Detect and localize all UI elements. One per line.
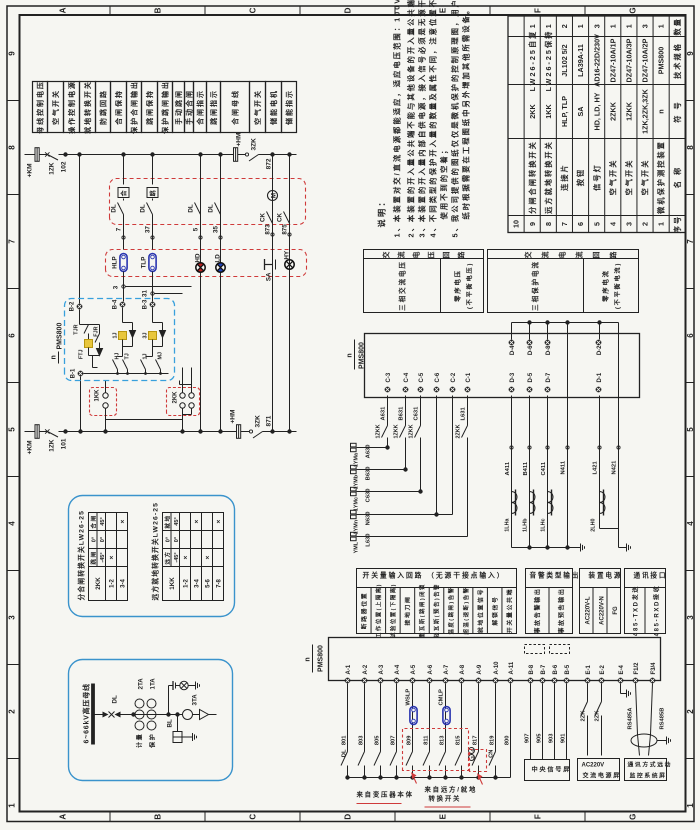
svg-text:TLP: TLP <box>141 257 148 269</box>
svg-text:FJR: FJR <box>94 326 100 336</box>
svg-text:PMS800: PMS800 <box>318 645 325 672</box>
svg-text:9: 9 <box>686 51 695 56</box>
svg-text:CMLP: CMLP <box>439 689 445 706</box>
svg-text:温度(跳闸)告警: 温度(跳闸)告警 <box>447 586 455 634</box>
svg-text:空气开关: 空气开关 <box>624 159 633 196</box>
svg-text:B631: B631 <box>399 406 405 421</box>
svg-text:符 号: 符 号 <box>673 100 682 122</box>
svg-text:F: F <box>534 814 543 819</box>
svg-text:35: 35 <box>213 226 220 233</box>
svg-text:A630: A630 <box>366 445 372 459</box>
svg-text:B: B <box>154 7 163 13</box>
svg-text:4、不同类型的保护开入量的数量及属性不同，注意位置不要接错，: 4、不同类型的保护开入量的数量及属性不同，注意位置不要接错， <box>429 0 438 238</box>
svg-text:0°: 0° <box>174 537 180 542</box>
svg-text:操作控制电源: 操作控制电源 <box>67 80 76 134</box>
svg-text:A-11: A-11 <box>509 661 515 674</box>
svg-text:远方: 远方 <box>164 550 172 564</box>
svg-text:序号: 序号 <box>673 215 682 233</box>
svg-text:1KK: 1KK <box>544 104 553 119</box>
svg-text:CK: CK <box>260 213 267 222</box>
svg-text:空气开关: 空气开关 <box>253 89 262 125</box>
svg-text:1ZK,2ZK,3ZK: 1ZK,2ZK,3ZK <box>641 88 650 134</box>
svg-text:合闸母线: 合闸母线 <box>231 89 240 126</box>
svg-text:3: 3 <box>8 615 17 620</box>
svg-text:A-1: A-1 <box>346 664 352 674</box>
svg-text:10: 10 <box>512 220 521 228</box>
svg-text:7: 7 <box>8 239 17 244</box>
svg-text:JL102 5/2: JL102 5/2 <box>560 44 569 76</box>
svg-text:交: 交 <box>382 250 391 259</box>
svg-text:871: 871 <box>266 415 273 426</box>
svg-text:102: 102 <box>61 161 68 172</box>
svg-text:E: E <box>439 7 448 13</box>
svg-text:903: 903 <box>549 733 555 743</box>
svg-text:2LH0: 2LH0 <box>591 519 597 532</box>
svg-text:交流电源屏: 交流电源屏 <box>583 772 621 780</box>
svg-text:开关量公共端: 开关量公共端 <box>505 588 513 633</box>
svg-text:817: 817 <box>473 736 479 746</box>
svg-text:1: 1 <box>686 803 695 808</box>
svg-text:1: 1 <box>608 24 617 28</box>
svg-text:1J: 1J <box>113 333 119 339</box>
svg-text:2ZKK: 2ZKK <box>456 424 462 438</box>
svg-text:4: 4 <box>608 222 617 226</box>
svg-text:B-2: B-2 <box>70 301 76 311</box>
svg-text:D-1: D-1 <box>597 372 603 382</box>
svg-text:按钮: 按钮 <box>576 168 585 186</box>
svg-text:LW26-25自复: LW26-25自复 <box>528 30 537 92</box>
svg-text:45°: 45° <box>174 517 180 525</box>
svg-text:技术规格: 技术规格 <box>673 42 682 79</box>
svg-text:远方就地转换开关LW26-25: 远方就地转换开关LW26-25 <box>151 502 160 600</box>
svg-text:保护跳闸输出: 保护跳闸输出 <box>161 80 170 135</box>
svg-text:-45°: -45° <box>100 552 106 562</box>
svg-text:三相交流电压: 三相交流电压 <box>398 260 407 311</box>
svg-text:手动跳闸: 手动跳闸 <box>174 89 183 125</box>
svg-text:2ZK: 2ZK <box>581 710 587 722</box>
svg-text:1: 1 <box>544 24 553 28</box>
svg-text:事故告警输出: 事故告警输出 <box>534 587 542 633</box>
svg-text:N421: N421 <box>612 460 618 475</box>
svg-text:路: 路 <box>609 250 618 259</box>
svg-text:6~66kV高压母线: 6~66kV高压母线 <box>82 683 91 743</box>
svg-text:1: 1 <box>8 803 17 808</box>
svg-text:485-TXD发送: 485-TXD发送 <box>632 585 640 636</box>
svg-text:A-4: A-4 <box>395 664 401 674</box>
svg-text:×: × <box>183 555 190 559</box>
svg-text:1YMc: 1YMc <box>354 497 360 511</box>
svg-text:0°: 0° <box>166 537 172 542</box>
svg-text:AC220V-L: AC220V-L <box>586 596 592 624</box>
svg-text:5: 5 <box>592 222 601 226</box>
svg-text:就地位置信号: 就地位置信号 <box>476 588 484 633</box>
svg-text:n: n <box>657 109 666 113</box>
svg-text:1: 1 <box>657 24 666 28</box>
svg-text:F: F <box>534 8 543 13</box>
svg-text:800: 800 <box>505 736 511 746</box>
svg-text:母线控制电压: 母线控制电压 <box>36 80 45 134</box>
svg-text:805: 805 <box>375 735 381 745</box>
svg-text:保护合闸输出: 保护合闸输出 <box>130 80 139 135</box>
svg-text:37: 37 <box>145 226 152 233</box>
svg-text:9: 9 <box>8 51 17 56</box>
svg-text:B-8: B-8 <box>529 664 535 674</box>
svg-text:三相保护电流: 三相保护电流 <box>531 260 540 311</box>
svg-text:A-8: A-8 <box>460 664 466 674</box>
svg-text:PMS800: PMS800 <box>57 323 64 350</box>
svg-text:B: B <box>154 814 163 820</box>
svg-text:2: 2 <box>686 709 695 714</box>
svg-text:C631: C631 <box>414 406 420 421</box>
svg-text:信号灯: 信号灯 <box>592 163 601 191</box>
svg-text:路: 路 <box>457 250 466 259</box>
svg-text:D: D <box>344 814 353 820</box>
svg-text:875: 875 <box>282 224 289 235</box>
svg-text:5-6: 5-6 <box>206 579 212 588</box>
svg-text:n: n <box>305 657 312 661</box>
svg-text:PMS800: PMS800 <box>359 342 366 369</box>
svg-text:F1/2: F1/2 <box>634 662 640 675</box>
svg-text:通讯方式远动: 通讯方式远动 <box>628 761 673 769</box>
svg-text:2ZKK: 2ZKK <box>608 101 617 121</box>
svg-text:809: 809 <box>407 735 413 745</box>
svg-text:装置电源: 装置电源 <box>588 571 623 580</box>
svg-text:FTJ: FTJ <box>79 350 85 360</box>
svg-text:流: 流 <box>541 250 550 259</box>
svg-text:HLP, TLP: HLP, TLP <box>560 96 569 127</box>
svg-text:重瓦斯(跳闸)闭锁: 重瓦斯(跳闸)闭锁 <box>418 583 426 638</box>
svg-text:A-10: A-10 <box>494 661 500 675</box>
svg-text:3J: 3J <box>143 333 149 339</box>
svg-text:2KK: 2KK <box>528 104 537 119</box>
svg-text:1TA: 1TA <box>150 678 157 690</box>
svg-text:9: 9 <box>528 222 537 226</box>
svg-text:1ZKK: 1ZKK <box>394 424 400 438</box>
svg-text:防跳回路: 防跳回路 <box>99 89 108 125</box>
svg-text:8: 8 <box>8 145 17 150</box>
svg-text:试验位置(下隔离): 试验位置(下隔离) <box>389 583 397 638</box>
svg-text:1ZKK: 1ZKK <box>624 101 633 121</box>
svg-text:电: 电 <box>558 250 567 259</box>
svg-text:跳: 跳 <box>149 189 157 197</box>
svg-text:DL: DL <box>140 204 147 212</box>
svg-text:DZ47-10A/3P: DZ47-10A/3P <box>624 38 633 82</box>
svg-text:断路器位置: 断路器位置 <box>360 592 368 630</box>
svg-text:N630: N630 <box>366 512 372 526</box>
svg-text:1: 1 <box>576 24 585 28</box>
svg-text:1ZK: 1ZK <box>49 439 56 452</box>
svg-text:813: 813 <box>440 735 446 745</box>
svg-text:807: 807 <box>391 736 397 746</box>
svg-text:7-8: 7-8 <box>217 579 223 588</box>
svg-text:D-5: D-5 <box>528 372 534 382</box>
svg-text:A: A <box>59 7 68 13</box>
svg-text:×: × <box>194 519 201 523</box>
svg-text:HD, LD, HY: HD, LD, HY <box>592 92 601 130</box>
svg-text:E-2: E-2 <box>600 665 606 675</box>
svg-text:BL: BL <box>167 719 174 727</box>
svg-text:数量: 数量 <box>673 17 682 35</box>
svg-text:2: 2 <box>641 222 650 226</box>
svg-text:C: C <box>249 7 258 13</box>
svg-text:1-2: 1-2 <box>110 579 116 588</box>
svg-text:3: 3 <box>592 24 601 28</box>
svg-text:901: 901 <box>561 733 567 743</box>
svg-text:3-4: 3-4 <box>121 579 127 588</box>
svg-text:D: D <box>344 7 353 13</box>
svg-text:101: 101 <box>61 438 68 449</box>
svg-text:×: × <box>216 519 223 523</box>
svg-text:C: C <box>249 814 258 820</box>
svg-text:5: 5 <box>686 427 695 432</box>
svg-text:n: n <box>347 353 354 357</box>
svg-text:说明：: 说明： <box>377 196 387 227</box>
svg-text:A-6: A-6 <box>428 664 434 674</box>
svg-text:3ZK: 3ZK <box>255 415 262 428</box>
svg-text:B-1: B-1 <box>71 368 77 378</box>
svg-text:跳闸: 跳闸 <box>90 550 98 564</box>
svg-text:LA39A-11: LA39A-11 <box>576 44 585 77</box>
svg-text:流: 流 <box>397 250 406 259</box>
svg-text:D-8: D-8 <box>546 345 552 355</box>
svg-text:A631: A631 <box>381 406 387 421</box>
svg-text:907: 907 <box>525 734 531 744</box>
svg-text:7: 7 <box>116 227 123 231</box>
svg-text:5: 5 <box>193 227 200 231</box>
svg-text:×: × <box>109 555 116 559</box>
svg-text:D-4: D-4 <box>510 345 516 355</box>
svg-text:G: G <box>629 7 638 13</box>
svg-text:使用不到的空着；: 使用不到的空着； <box>440 145 450 221</box>
svg-text:1ZK: 1ZK <box>49 162 56 175</box>
svg-text:来自远方/就地: 来自远方/就地 <box>424 785 478 794</box>
svg-text:B-6: B-6 <box>553 664 559 674</box>
svg-text:电: 电 <box>412 250 421 259</box>
svg-text:6: 6 <box>8 333 17 338</box>
svg-text:1ZKK: 1ZKK <box>409 424 415 438</box>
svg-text:3: 3 <box>113 285 120 289</box>
svg-text:RS485B: RS485B <box>660 708 666 730</box>
svg-text:空气开关: 空气开关 <box>51 89 60 125</box>
svg-text:C-6: C-6 <box>435 372 441 382</box>
svg-text:815: 815 <box>456 735 462 745</box>
svg-text:解锁信号: 解锁信号 <box>491 595 499 625</box>
svg-text:CK: CK <box>277 213 284 222</box>
svg-text:就地转换开关: 就地转换开关 <box>83 80 92 134</box>
svg-text:SA: SA <box>266 272 273 281</box>
svg-text:-45°: -45° <box>174 552 180 562</box>
svg-text:合闸: 合闸 <box>90 514 98 528</box>
svg-text:跳闸指示: 跳闸指示 <box>209 89 218 125</box>
svg-text:计量: 计量 <box>136 733 144 748</box>
svg-text:8: 8 <box>686 145 695 150</box>
svg-text:1KK: 1KK <box>95 389 101 402</box>
svg-text:1: 1 <box>657 222 666 226</box>
svg-text:来自变压器本体: 来自变压器本体 <box>356 790 414 799</box>
svg-text:1LHa: 1LHa <box>505 518 511 532</box>
svg-text:压: 压 <box>427 250 436 259</box>
svg-text:DL: DL <box>342 749 348 757</box>
svg-text:TJR: TJR <box>74 324 80 334</box>
svg-text:零序电压: 零序电压 <box>453 269 462 303</box>
svg-text:819: 819 <box>490 735 496 745</box>
svg-text:分合闸转换开关LW26-25: 分合闸转换开关LW26-25 <box>77 510 86 601</box>
svg-text:L631: L631 <box>461 407 467 421</box>
svg-text:(不平衡电压): (不平衡电压) <box>466 262 474 309</box>
svg-text:+KM: +KM <box>27 164 34 178</box>
svg-text:4: 4 <box>8 521 17 526</box>
svg-text:6: 6 <box>686 333 695 338</box>
svg-text:储能电机: 储能电机 <box>269 89 278 126</box>
svg-text:C-1: C-1 <box>466 372 472 382</box>
svg-text:905: 905 <box>537 733 543 743</box>
svg-text:FG: FG <box>613 606 619 615</box>
svg-text:803: 803 <box>359 735 365 745</box>
svg-text:B411: B411 <box>523 461 529 475</box>
svg-text:4: 4 <box>686 521 695 526</box>
svg-text:AC220V-N: AC220V-N <box>600 596 606 625</box>
svg-text:A-5: A-5 <box>411 664 417 674</box>
svg-text:A-7: A-7 <box>444 664 450 674</box>
svg-text:DZ47-10A/1P: DZ47-10A/1P <box>608 38 617 82</box>
svg-text:F3/4: F3/4 <box>651 662 657 675</box>
svg-text:转换开关: 转换开关 <box>429 794 462 803</box>
svg-text:名 称: 名 称 <box>673 166 682 188</box>
svg-text:3、本装置的开入量内部自供电源，接入信号必须是无源干接点；: 3、本装置的开入量内部自供电源，接入信号必须是无源干接点； <box>418 0 428 238</box>
svg-text:B-3: B-3 <box>143 299 149 309</box>
svg-text:SA: SA <box>576 107 585 117</box>
svg-text:分闸合闸转换开关: 分闸合闸转换开关 <box>528 140 537 214</box>
svg-text:工作位置(上隔离): 工作位置(上隔离) <box>375 583 383 638</box>
svg-text:A-3: A-3 <box>379 664 385 674</box>
svg-text:3-4: 3-4 <box>195 579 201 588</box>
svg-text:A-9: A-9 <box>477 664 483 674</box>
svg-text:5、我公司提供的图纸仅仅是微机保护的控制原理图，用户设计图: 5、我公司提供的图纸仅仅是微机保护的控制原理图，用户设计图 <box>451 0 460 238</box>
svg-text:保护: 保护 <box>149 733 157 749</box>
svg-text:C-3: C-3 <box>386 372 392 382</box>
svg-text:1LHc: 1LHc <box>541 519 547 532</box>
svg-text:L421: L421 <box>593 461 599 475</box>
svg-text:DL: DL <box>112 695 119 703</box>
svg-text:DL: DL <box>188 204 195 212</box>
svg-text:B-7: B-7 <box>541 664 547 674</box>
svg-text:A-2: A-2 <box>363 664 369 674</box>
svg-text:+HM: +HM <box>230 410 237 424</box>
svg-text:31: 31 <box>142 290 149 297</box>
svg-text:回: 回 <box>442 250 451 259</box>
svg-text:MJ: MJ <box>158 352 164 360</box>
svg-text:LW26-25保持: LW26-25保持 <box>544 30 553 92</box>
svg-text:2: 2 <box>560 24 569 28</box>
svg-text:1LHb: 1LHb <box>523 518 529 532</box>
svg-text:7: 7 <box>560 222 569 226</box>
svg-text:5: 5 <box>8 427 17 432</box>
svg-text:0°: 0° <box>100 537 106 542</box>
svg-text:D-3: D-3 <box>510 372 516 382</box>
svg-text:合闸保持: 合闸保持 <box>114 89 123 126</box>
svg-text:1ZKK: 1ZKK <box>376 424 382 438</box>
svg-text:3: 3 <box>624 222 633 226</box>
svg-text:C411: C411 <box>541 461 547 475</box>
svg-text:485-RXD接收: 485-RXD接收 <box>653 585 661 637</box>
svg-text:2: 2 <box>8 709 17 714</box>
svg-text:D-6: D-6 <box>528 345 534 355</box>
svg-text:DZ47-10A/2P: DZ47-10A/2P <box>641 38 650 82</box>
svg-text:通讯接口: 通讯接口 <box>634 571 668 580</box>
svg-text:45°: 45° <box>100 517 106 525</box>
svg-text:0°: 0° <box>92 537 98 542</box>
svg-text:AD16-22D/230V: AD16-22D/230V <box>592 34 601 87</box>
svg-text:E-1: E-1 <box>586 665 592 675</box>
svg-text:×: × <box>205 555 212 559</box>
svg-text:连接片: 连接片 <box>560 163 569 191</box>
svg-text:AC220V: AC220V <box>582 763 605 769</box>
svg-text:873: 873 <box>265 224 272 235</box>
svg-text:A411: A411 <box>505 461 511 475</box>
svg-text:LD: LD <box>215 254 222 263</box>
svg-text:PMS800: PMS800 <box>657 47 666 75</box>
svg-text:M: M <box>271 193 278 198</box>
svg-text:801: 801 <box>342 735 348 745</box>
svg-text:3: 3 <box>686 615 695 620</box>
svg-text:N411: N411 <box>561 460 567 474</box>
svg-text:B-5: B-5 <box>565 664 571 674</box>
svg-text:跳闸保持: 跳闸保持 <box>145 89 154 125</box>
svg-text:纸时根据需要在工程图纸中另外增加其他所需设备。: 纸时根据需要在工程图纸中另外增加其他所需设备。 <box>462 5 471 220</box>
svg-text:合闸指示: 合闸指示 <box>196 89 205 126</box>
svg-text:2TA: 2TA <box>138 678 145 690</box>
svg-text:空气开关: 空气开关 <box>608 159 617 196</box>
svg-text:C-2: C-2 <box>451 372 457 382</box>
svg-text:远方就地转换开关: 远方就地转换开关 <box>544 140 553 214</box>
svg-text:超温(速断)告警: 超温(速断)告警 <box>462 586 470 635</box>
svg-text:3: 3 <box>641 24 650 28</box>
svg-text:储能指示: 储能指示 <box>285 89 294 126</box>
svg-text:3ZK: 3ZK <box>251 138 258 151</box>
svg-text:事故预告输出: 事故预告输出 <box>558 587 566 633</box>
svg-text:8: 8 <box>544 222 553 226</box>
svg-text:(不平衡电流): (不平衡电流) <box>614 262 622 309</box>
svg-text:接地刀闸: 接地刀闸 <box>404 595 412 625</box>
svg-text:D-2: D-2 <box>597 345 603 355</box>
svg-text:HLP: HLP <box>112 256 119 268</box>
svg-text:3: 3 <box>470 756 475 759</box>
svg-text:3TA: 3TA <box>192 694 199 706</box>
svg-text:1KK: 1KK <box>169 577 176 590</box>
svg-text:1: 1 <box>624 24 633 28</box>
svg-text:B630: B630 <box>366 467 372 481</box>
svg-text:2、本装置的开入量公共端不能与其他设备的开入量公共端复用；: 2、本装置的开入量公共端不能与其他设备的开入量公共端复用； <box>407 0 417 238</box>
svg-text:WSLP: WSLP <box>406 689 412 706</box>
svg-text:E: E <box>439 813 448 819</box>
svg-text:TJ: TJ <box>125 353 131 359</box>
svg-text:HD: HD <box>195 253 202 262</box>
svg-text:2KK: 2KK <box>95 577 102 590</box>
svg-text:2ZK: 2ZK <box>595 710 601 722</box>
svg-text:手动合闸: 手动合闸 <box>185 89 194 125</box>
svg-text:1、本装置对交/直流电源都能适应，适应电压范围：100V-2: 1、本装置对交/直流电源都能适应，适应电压范围：100V-230V； <box>393 0 403 238</box>
svg-text:DL: DL <box>111 204 118 212</box>
svg-text:HY: HY <box>284 250 291 259</box>
svg-text:监控系统屏: 监控系统屏 <box>630 772 667 780</box>
svg-text:合: 合 <box>120 189 128 197</box>
svg-text:G: G <box>629 814 638 820</box>
svg-text:微机保护测控装置: 微机保护测控装置 <box>657 140 666 215</box>
svg-text:1: 1 <box>528 24 537 28</box>
svg-text:L630: L630 <box>366 534 372 547</box>
svg-text:轻瓦斯(预告)告警: 轻瓦斯(预告)告警 <box>433 583 441 638</box>
svg-text:流: 流 <box>575 250 584 259</box>
